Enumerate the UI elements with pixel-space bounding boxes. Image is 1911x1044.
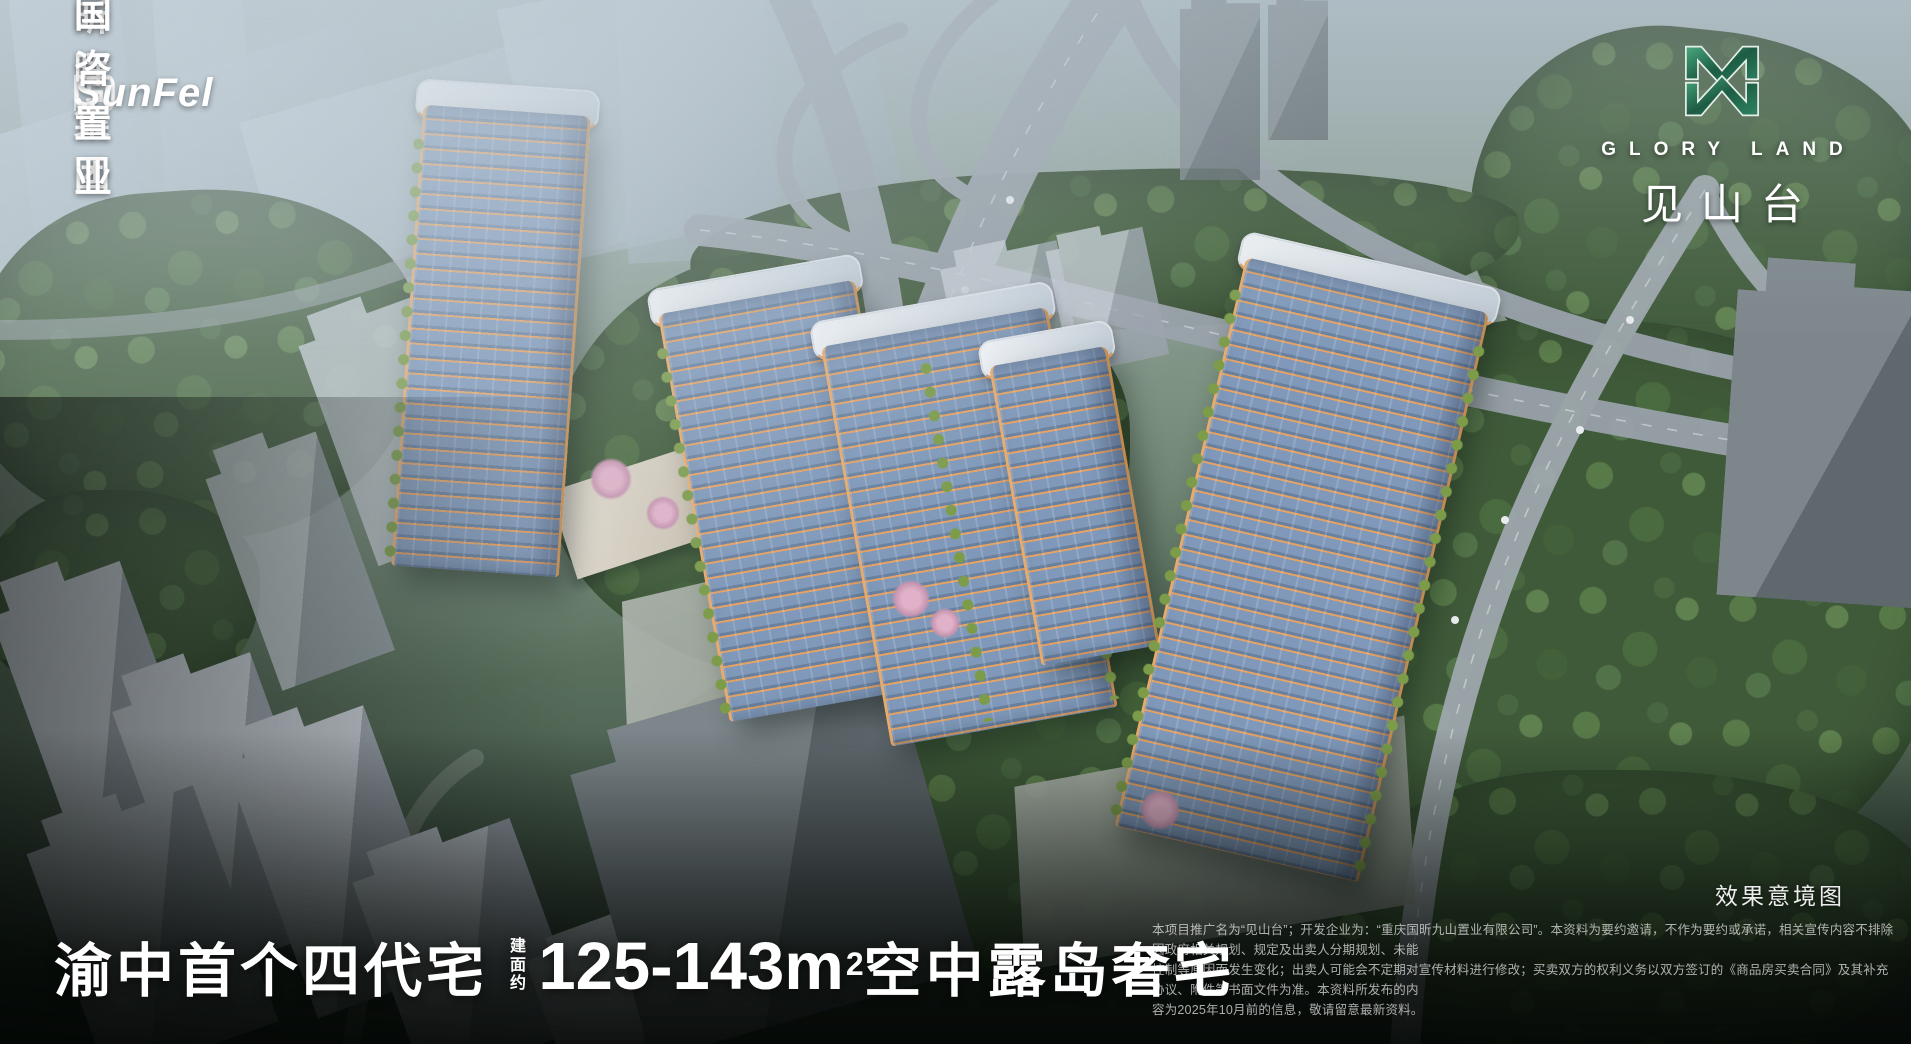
headline-area-value: 125-143m2 xyxy=(538,928,863,1005)
headline-area-label: 建面约 xyxy=(510,938,528,995)
tower-left xyxy=(391,79,593,578)
headline-area-superscript: 2 xyxy=(846,946,864,982)
legal-line: 控制等原因而发生变化；出卖人可能会不定期对宣传材料进行修改；买卖双方的权利义务以… xyxy=(1152,960,1897,1000)
headline-lead: 渝中首个四代宅 xyxy=(54,924,488,1008)
legal-line: 本项目推广名为“见山台”；开发企业为：“重庆国昕九山置业有限公司”。本资料为要约… xyxy=(1152,920,1897,960)
massing-block xyxy=(1716,255,1911,608)
brand-lockup-right: GLORY LAND 见山台 xyxy=(1587,38,1857,232)
legal-line: 容为2025年10月前的信息，敬请留意最新资料。 xyxy=(1152,1000,1897,1020)
gloryland-butterfly-m-icon xyxy=(1587,38,1857,129)
render-caption: 效果意境图 xyxy=(1152,877,1897,911)
blossom-tree xyxy=(1140,790,1180,830)
poster-canvas: SunFel 昕晖集团 国咨置业 xyxy=(0,0,1911,1044)
blossom-tree xyxy=(590,458,632,500)
massing-block xyxy=(1268,0,1328,140)
blossom-tree xyxy=(646,496,680,530)
brand-lockup-left: SunFel 昕晖集团 国咨置业 xyxy=(74,72,116,114)
blossom-tree xyxy=(892,580,930,618)
legal-block: 效果意境图 本项目推广名为“见山台”；开发企业为：“重庆国昕九山置业有限公司”。… xyxy=(1152,877,1897,1020)
headline: 渝中首个四代宅 建面约 125-143m2 空中露岛奢宅 xyxy=(54,924,1236,1008)
guozi-wordmark: 国咨置业 xyxy=(74,0,116,203)
massing-block xyxy=(1180,0,1260,180)
blossom-tree xyxy=(930,608,960,638)
gloryland-wordmark-cn: 见山台 xyxy=(1587,171,1857,232)
gloryland-wordmark-en: GLORY LAND xyxy=(1587,139,1857,161)
